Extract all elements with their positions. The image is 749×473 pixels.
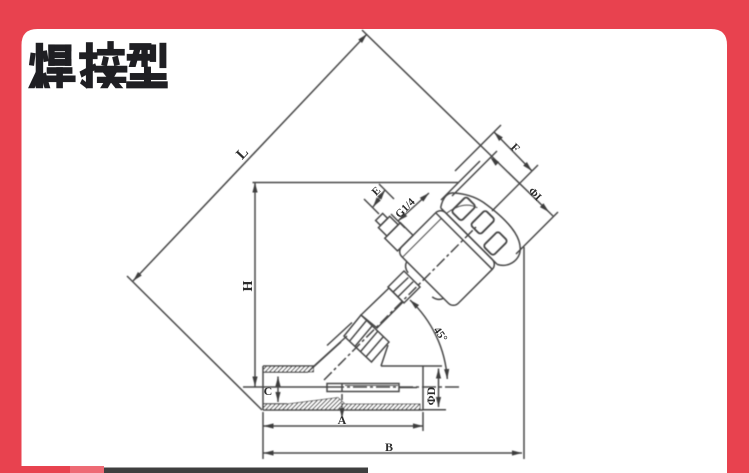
- svg-text:C: C: [264, 384, 273, 398]
- svg-text:ΦD: ΦD: [424, 386, 438, 405]
- svg-text:H: H: [241, 280, 256, 291]
- svg-text:B: B: [385, 440, 393, 454]
- svg-text:A: A: [338, 413, 347, 427]
